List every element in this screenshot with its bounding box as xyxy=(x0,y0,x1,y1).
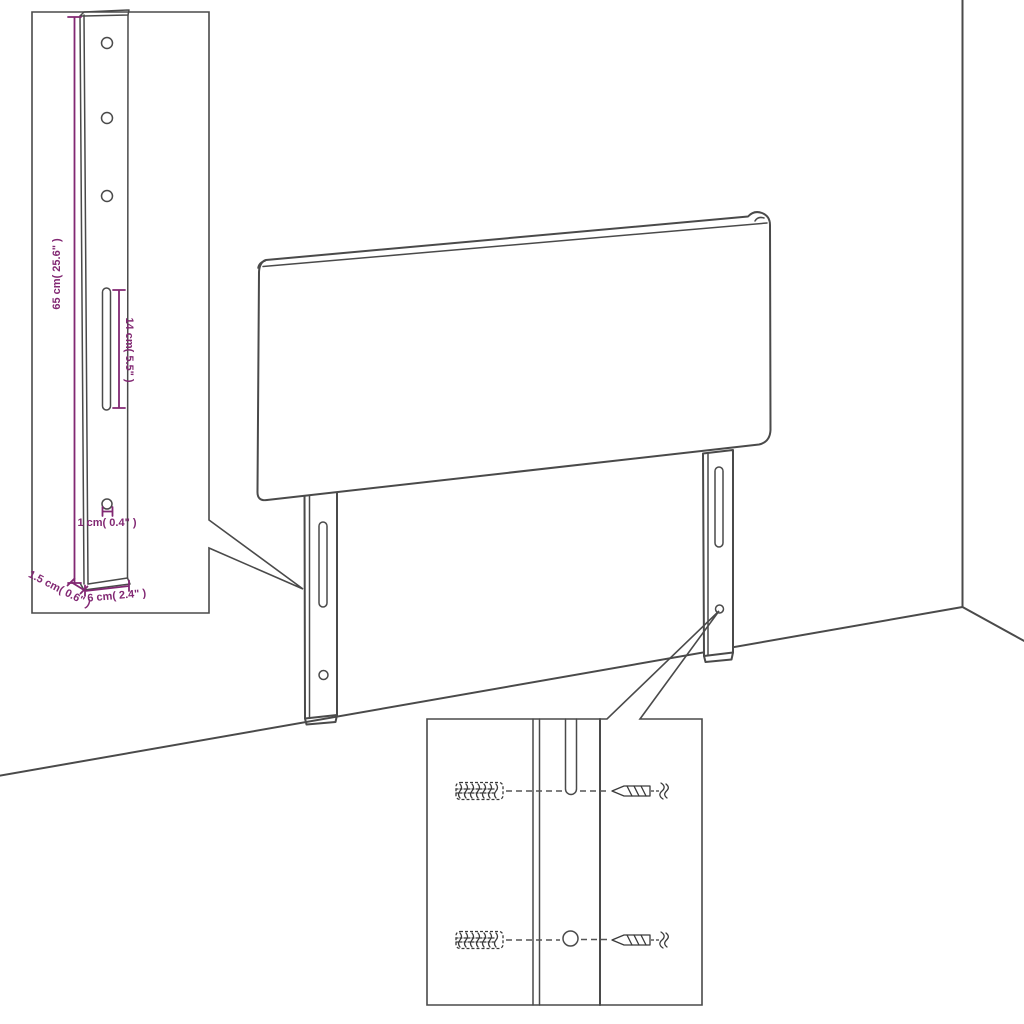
mounting-leg-right xyxy=(703,450,733,662)
diagram-canvas: 65 cm( 25.6" ) 14 cm( 5.5" ) 1 cm( 0.4" … xyxy=(0,0,1024,1024)
dim-line-65cm xyxy=(68,17,81,583)
headboard-diagram: 65 cm( 25.6" ) 14 cm( 5.5" ) 1 cm( 0.4" … xyxy=(0,0,1024,1024)
label-slot-length: 14 cm( 5.5" ) xyxy=(123,317,135,382)
screw-bottom xyxy=(612,932,668,948)
headboard-panel xyxy=(257,212,770,500)
bracket-hole-2 xyxy=(102,113,113,124)
bracket-front-bottom-edge xyxy=(88,578,128,584)
floor-line-left xyxy=(0,607,963,776)
bracket-bottom-hole xyxy=(102,499,112,509)
wall-plug-top xyxy=(456,783,503,800)
bracket-front-right-edge xyxy=(128,15,129,578)
wall-plug-bottom xyxy=(456,932,503,949)
dimension-lines xyxy=(68,17,130,596)
label-hole-diameter: 1 cm( 0.4" ) xyxy=(77,517,136,529)
floor-line-right xyxy=(963,607,1024,642)
bracket-hole-1 xyxy=(102,38,113,49)
label-bracket-height: 65 cm( 25.6" ) xyxy=(51,238,63,310)
bracket-drawing xyxy=(80,10,130,590)
bracket-hole-3 xyxy=(102,191,113,202)
bracket-top-face xyxy=(80,10,129,16)
leg-closeup xyxy=(533,719,600,1005)
leg-closeup-hole xyxy=(563,931,578,946)
leg-closeup-slot xyxy=(566,719,577,795)
bracket-side-edge-inner xyxy=(84,15,88,584)
screw-top xyxy=(612,783,668,799)
panel-outline xyxy=(257,212,770,500)
mounting-leg-left xyxy=(305,485,338,725)
fastener-row-bottom xyxy=(456,932,668,949)
bracket-slot xyxy=(103,288,111,410)
fastener-row-top xyxy=(456,783,668,800)
mounting-detail-inset xyxy=(427,611,719,1005)
bracket-side-edge-outer xyxy=(80,16,84,584)
